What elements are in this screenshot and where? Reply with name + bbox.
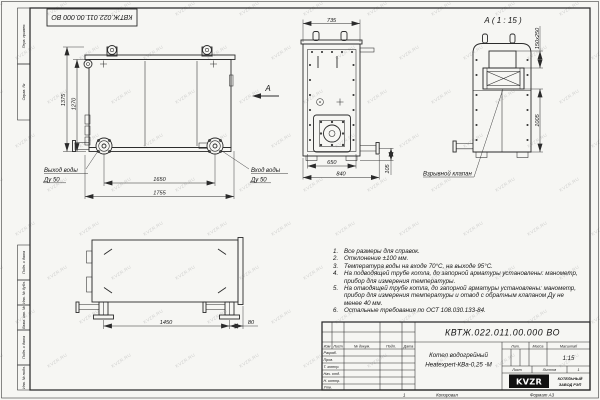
note-item: 2. Отклонение ±100 мм.	[333, 255, 581, 262]
dim-height-total: 1375	[61, 93, 67, 106]
row-nachotd: Нач. отд.	[324, 372, 341, 376]
margin-label: Инв. № дубл.	[22, 281, 26, 304]
note-item: 3. Температура воды на входе 70°С, на вы…	[333, 263, 581, 270]
zone-number: 1	[403, 393, 406, 398]
detail-view-a: А ( 1 : 15 ) 150х250 1005	[423, 16, 543, 177]
col-izm: Изм	[324, 344, 331, 348]
inlet-label: Вход воды	[251, 168, 281, 174]
side-view: 735 650 840 105	[301, 18, 394, 180]
row-prov: Пров.	[324, 358, 334, 362]
org-name-line2: ЗАВОД РЭП	[559, 383, 582, 387]
logo-text: KVZR	[516, 377, 543, 387]
note-text: Отклонение ±100 мм.	[344, 255, 581, 262]
title-block: КВТЖ.022.011.00.000 ВО Изм Лист № докум.…	[322, 322, 590, 390]
format-label: Формат А3	[530, 393, 555, 398]
dim-pipe-height: 105	[385, 163, 391, 173]
sheets-label: Листов	[542, 368, 557, 372]
dim-offset: 80	[248, 320, 255, 326]
outlet-label: Выход воды	[44, 168, 78, 174]
note-item: 4. На подводящей трубе котла, до запорно…	[333, 270, 581, 285]
note-number: 2.	[333, 255, 344, 262]
flange-bolts	[98, 140, 222, 153]
dim-total-width: 840	[336, 172, 346, 178]
note-item: 5. На отводящей трубе котла, до запорной…	[333, 285, 581, 307]
note-text: На отводящей трубе котла, до запорной ар…	[344, 285, 581, 307]
note-item: 1. Все размеры для справок.	[333, 248, 581, 255]
col-data: Дата	[403, 344, 414, 348]
note-item: 6. Остальные требования по ОСТ 108.030.1…	[333, 307, 581, 314]
note-number: 4.	[333, 270, 344, 285]
sheet-label: Лист	[511, 368, 522, 372]
col-list: Лист	[332, 344, 343, 348]
scale-value: 1:15	[563, 356, 575, 362]
dim-body-width: 650	[327, 160, 337, 166]
note-text: Все размеры для справок.	[344, 248, 581, 255]
margin-label: Справ. №	[22, 84, 26, 101]
note-text: На подводящей трубе котла, до запорной а…	[344, 270, 581, 285]
dim-width-flanges: 1650	[153, 177, 166, 183]
detail-title: А ( 1 : 15 )	[483, 16, 522, 25]
org-name-line1: КОТЕЛЬНЫЙ	[558, 377, 583, 381]
dim-height-body: 1270	[71, 97, 77, 110]
dim-leg-span: 1450	[160, 320, 173, 326]
col-podp: Подп.	[386, 344, 396, 348]
view-arrow-mark: А	[264, 84, 270, 93]
margin-label: Взам. инв. №	[22, 306, 26, 329]
drawing-canvas: Перв. примен. Справ. № Подп. и дата Инв.…	[0, 0, 600, 400]
dim-top-width: 735	[327, 18, 337, 24]
inlet-dn-label: Ду 50	[250, 177, 267, 183]
doc-number-rotated: КВТЖ.022.011.00.000 ВО	[51, 13, 133, 20]
row-razrab: Разраб.	[324, 351, 337, 355]
dim-valve-height: 1005	[535, 113, 541, 126]
copied-label: Копировал	[436, 393, 458, 398]
header-mass: Масса	[533, 344, 544, 348]
product-name-line1: Котел водогрейный	[429, 352, 488, 359]
burner-bolts	[309, 51, 354, 145]
product-name-line2: Heatexpert-КВа-0,25 -М	[425, 362, 492, 369]
outlet-dn-label: Ду 50	[43, 177, 60, 183]
front-view: 1375 1270 1650 1755 Выход воды Ду 50 Вхо…	[43, 46, 288, 200]
row-nkontr: Н. контр.	[324, 379, 341, 383]
note-text: Остальные требования по ОСТ 108.030.133-…	[344, 307, 581, 314]
margin-label: Подп. и дата	[22, 251, 26, 274]
note-text: Температура воды на входе 70°С, на выход…	[344, 263, 581, 270]
note-number: 3.	[333, 263, 344, 270]
bottom-view: 1450 80	[76, 238, 258, 330]
header-lit: Лит.	[510, 344, 520, 348]
note-number: 1.	[333, 248, 344, 255]
sheets-value: 1	[577, 368, 579, 372]
note-number: 6.	[333, 307, 344, 314]
row-utv: Утв.	[324, 386, 332, 390]
dim-valve-size: 150х250	[535, 27, 541, 49]
drawing-sheet: KVZR.RUKVZR.RUKVZR.RUKVZR.RUKVZR.RUKVZR.…	[0, 0, 600, 400]
technical-notes: 1. Все размеры для справок. 2. Отклонени…	[333, 248, 581, 315]
col-ndokum: № докум.	[354, 344, 370, 348]
doc-number: КВТЖ.022.011.00.000 ВО	[445, 328, 560, 338]
dim-width-total: 1755	[153, 191, 166, 197]
margin-label: Инв. № подл.	[22, 366, 26, 389]
margin-label: Перв. примен.	[22, 24, 26, 49]
note-number: 5.	[333, 285, 344, 307]
row-tkontr: Т. контр.	[324, 365, 340, 369]
margin-label: Подп. и дата	[22, 336, 26, 359]
header-scale: Масштаб	[560, 344, 578, 348]
valve-label: Взрывной клапан	[423, 170, 472, 177]
